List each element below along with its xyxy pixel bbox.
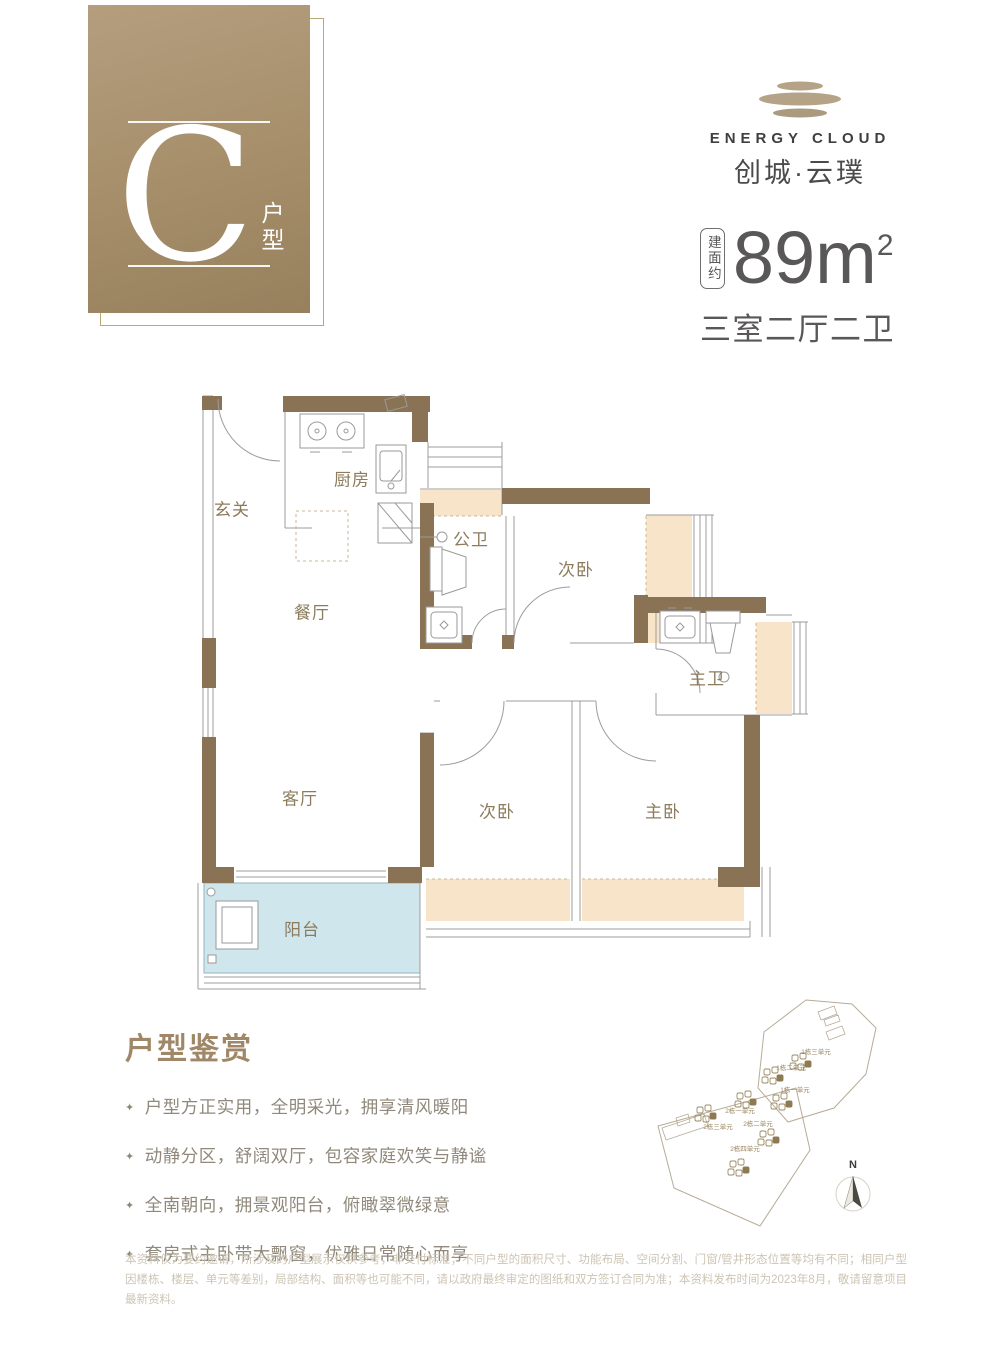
list-item: ✦全南朝向，拥景观阳台，俯瞰翠微绿意 [125,1180,595,1229]
unit-type-letter: C [116,121,255,271]
siteplan-drawing: 1栋三单元 1栋二单元 1栋一单元 2栋一单元 2栋三单元 2栋二单元 2栋四单… [648,992,910,1232]
disclaimer-text: 本资料仅为要约邀请，所涉及的户型展示仅供参考，非交付标准；不同户型的面积尺寸、功… [125,1250,907,1310]
unit-label: 2栋一单元 [725,1106,755,1115]
bathroom-sink-icon [426,607,462,643]
area-unit: m [815,216,877,299]
room-label-master-bath: 主卫 [689,665,725,690]
compass-icon: N [836,1159,870,1211]
appreciation-list: ✦户型方正实用，全明采光，拥享清风暖阳 ✦动静分区，舒阔双厅，包容家庭欢笑与静谧… [125,1082,595,1278]
star-bullet-icon: ✦ [125,1102,135,1114]
stove-icon [300,414,364,452]
list-item: ✦户型方正实用，全明采光，拥享清风暖阳 [125,1082,595,1131]
bullet-text: 户型方正实用，全明采光，拥享清风暖阳 [145,1097,469,1117]
cloud-icon [690,80,910,120]
bullet-text: 全南朝向，拥景观阳台，俯瞰翠微绿意 [145,1195,451,1215]
appreciation-section: 户型鉴赏 ✦户型方正实用，全明采光，拥享清风暖阳 ✦动静分区，舒阔双厅，包容家庭… [125,1024,595,1278]
unit-label: 2栋三单元 [703,1122,733,1131]
master-toilet-icon [706,611,740,653]
brand-name-cn: 创城·云璞 [690,151,910,190]
kitchen-sink-icon [376,445,406,493]
room-label-dining: 餐厅 [294,599,330,624]
list-item: ✦动静分区，舒阔双厅，包容家庭欢笑与静谧 [125,1131,595,1180]
area-info: 建面约 89m2 三室二厅二卫 [700,204,912,349]
unit-label: 1栋三单元 [801,1047,831,1056]
unit-label: 2栋四单元 [730,1144,760,1153]
toilet-icon [430,547,466,595]
siteplan: 1栋三单元 1栋二单元 1栋一单元 2栋一单元 2栋三单元 2栋二单元 2栋四单… [648,992,910,1232]
brand-name-en: ENERGY CLOUD [690,130,910,147]
master-sink-icon [660,608,700,643]
badge-divider-bottom [128,265,270,267]
brand-logo: ENERGY CLOUD 创城·云璞 [690,80,910,190]
fridge-icon [378,503,412,543]
room-label-bedroom3: 次卧 [479,798,515,823]
room-label-guest-bath: 公卫 [453,526,489,551]
floorplan-drawing [190,385,810,997]
room-label-living: 客厅 [282,785,318,810]
unit-label: 1栋二单元 [776,1063,806,1072]
unit-type-badge: C 户型 [88,5,310,313]
layout-summary: 三室二厅二卫 [700,304,912,349]
compass-label: N [849,1159,857,1171]
area-number: 89 [733,216,815,299]
star-bullet-icon: ✦ [125,1151,135,1163]
floorplan-poster: C 户型 ENERGY CLOUD 创城·云璞 建面约 89m2 三室二厅二卫 [0,0,1000,1356]
room-label-entry: 玄关 [214,496,250,521]
room-label-bedroom2: 次卧 [558,556,594,581]
room-label-kitchen: 厨房 [334,466,370,491]
area-prefix-box: 建面约 [700,228,725,289]
appreciation-title: 户型鉴赏 [125,1024,595,1068]
area-exponent: 2 [877,229,894,262]
star-bullet-icon: ✦ [125,1200,135,1212]
unit-label: 1栋一单元 [780,1085,810,1094]
floorplan: 玄关 厨房 公卫 次卧 餐厅 主卫 客厅 次卧 主卧 阳台 [190,385,810,997]
unit-type-suffix: 户型 [254,201,288,255]
room-label-master-bedroom: 主卧 [645,798,681,823]
bullet-text: 动静分区，舒阔双厅，包容家庭欢笑与静谧 [145,1146,487,1166]
unit-label: 2栋二单元 [743,1119,773,1128]
area-value: 89m2 [733,204,894,300]
room-label-balcony: 阳台 [284,916,320,941]
